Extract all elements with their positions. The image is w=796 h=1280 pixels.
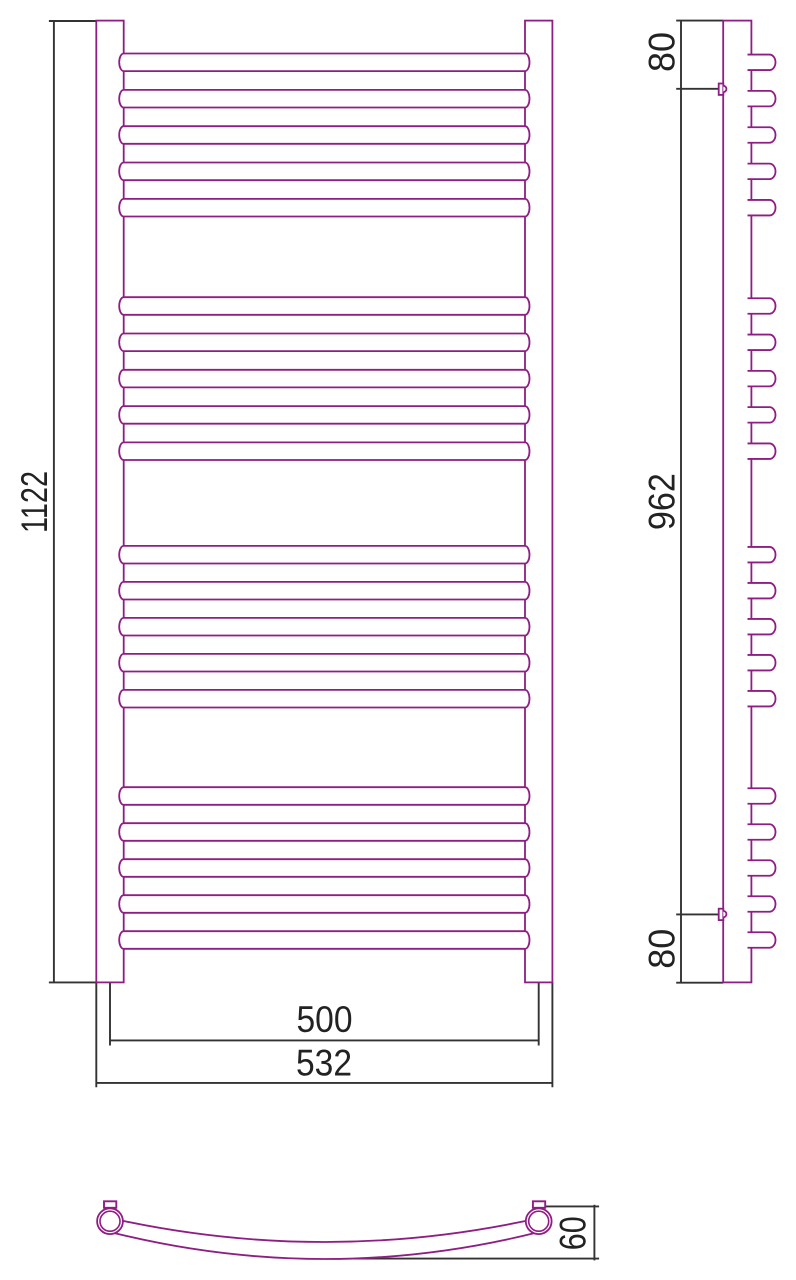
svg-text:60: 60 [552,1216,593,1250]
svg-text:80: 80 [642,32,683,72]
svg-text:500: 500 [297,999,353,1040]
svg-text:962: 962 [642,473,683,530]
svg-text:80: 80 [642,929,683,969]
svg-text:1122: 1122 [14,471,55,533]
svg-text:532: 532 [296,1043,352,1084]
